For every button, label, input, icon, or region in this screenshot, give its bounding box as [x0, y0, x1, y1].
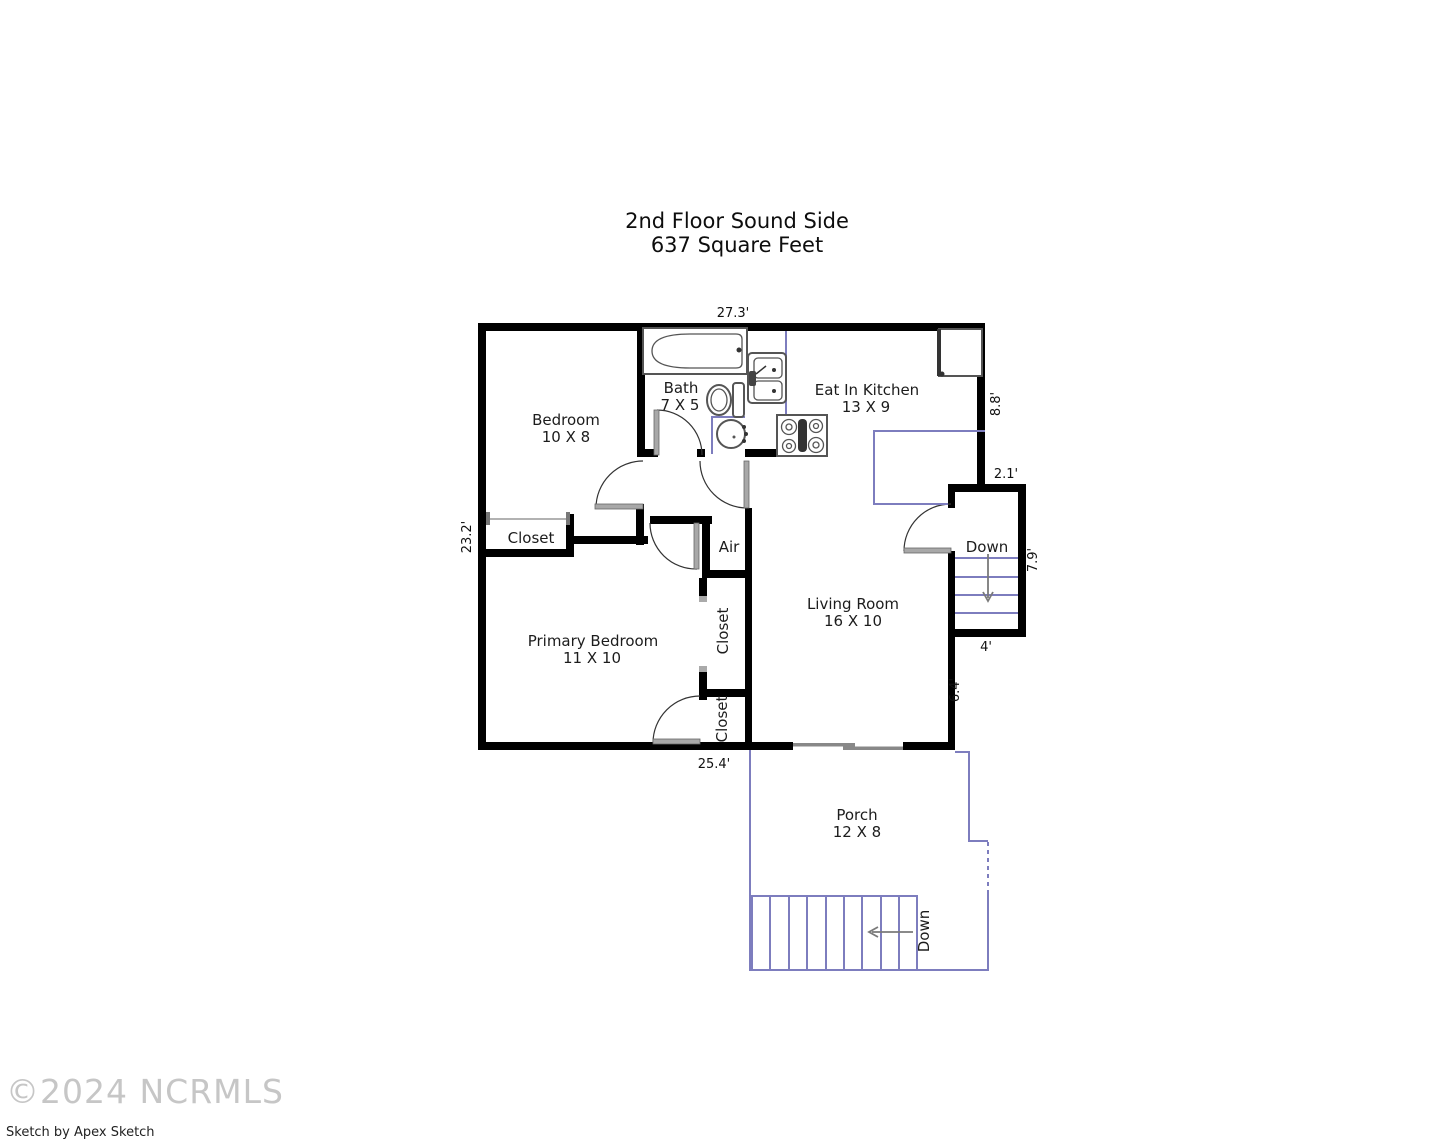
kitchen-sink-icon	[748, 353, 786, 403]
kitchen-label: Eat In Kitchen	[815, 381, 919, 399]
living-room-size: 16 X 10	[824, 612, 882, 630]
floor-plan-page: 2nd Floor Sound Side 637 Square Feet Bed…	[0, 0, 1430, 1141]
dim-stair-bottom: 4'	[980, 640, 992, 655]
stairwell-door	[904, 548, 951, 553]
porch-label: Porch	[836, 806, 877, 824]
hall-door	[744, 461, 749, 508]
dim-stair-right: 7.9'	[1026, 548, 1041, 572]
stove-icon	[777, 415, 827, 456]
bath-door	[654, 410, 659, 455]
interior-stairs-down-label: Down	[966, 538, 1009, 556]
primary-bedroom-door	[694, 523, 699, 569]
blue-lines	[712, 331, 1018, 970]
closet-door	[653, 739, 700, 744]
dim-bottom: 25.4'	[698, 757, 731, 772]
bedroom-closet-label: Closet	[508, 529, 555, 547]
floor-plan-canvas: 2nd Floor Sound Side 637 Square Feet Bed…	[0, 0, 1430, 1141]
bath-sink-icon	[717, 420, 748, 448]
interior-stair-treads	[955, 558, 1018, 613]
toilet-icon	[707, 383, 744, 417]
primary-bedroom-size: 11 X 10	[563, 649, 621, 667]
bathtub-icon	[643, 328, 747, 374]
bath-size: 7 X 5	[661, 396, 700, 414]
upper-closet-label: Closet	[714, 608, 732, 655]
plan-title-line1: 2nd Floor Sound Side	[625, 209, 849, 233]
dim-top: 27.3'	[717, 306, 750, 321]
primary-bedroom-label: Primary Bedroom	[528, 632, 659, 650]
bedroom-label: Bedroom	[532, 411, 600, 429]
bifold-track	[699, 596, 707, 602]
ceiling-break-line	[874, 431, 985, 504]
sketch-credit-text: Sketch by Apex Sketch	[6, 1125, 155, 1140]
bedroom-door	[595, 504, 643, 509]
bath-label: Bath	[664, 379, 699, 397]
plan-title-line2: 637 Square Feet	[651, 233, 823, 257]
down-arrow-porch	[869, 927, 913, 937]
copyright-text: ©2024 NCRMLS	[6, 1072, 284, 1111]
lower-closet-label: Closet	[713, 696, 731, 743]
dim-living-right: 6.4'	[948, 678, 963, 702]
kitchen-size: 13 X 9	[842, 398, 890, 416]
porch-size: 12 X 8	[833, 823, 881, 841]
bedroom-size: 10 X 8	[542, 428, 590, 446]
sliding-door	[793, 743, 855, 747]
porch-stairs-down-label: Down	[915, 910, 933, 953]
air-closet-label: Air	[719, 538, 740, 556]
refrigerator-icon	[939, 329, 982, 377]
dim-stair-top: 2.1'	[994, 467, 1018, 482]
porch-outline	[750, 750, 988, 970]
living-room-label: Living Room	[807, 595, 899, 613]
footer: ©2024 NCRMLS Sketch by Apex Sketch	[6, 1072, 284, 1140]
dim-kitchen-right: 8.8'	[989, 392, 1004, 416]
dim-left: 23.2'	[460, 521, 475, 554]
porch-stairs	[752, 896, 917, 970]
